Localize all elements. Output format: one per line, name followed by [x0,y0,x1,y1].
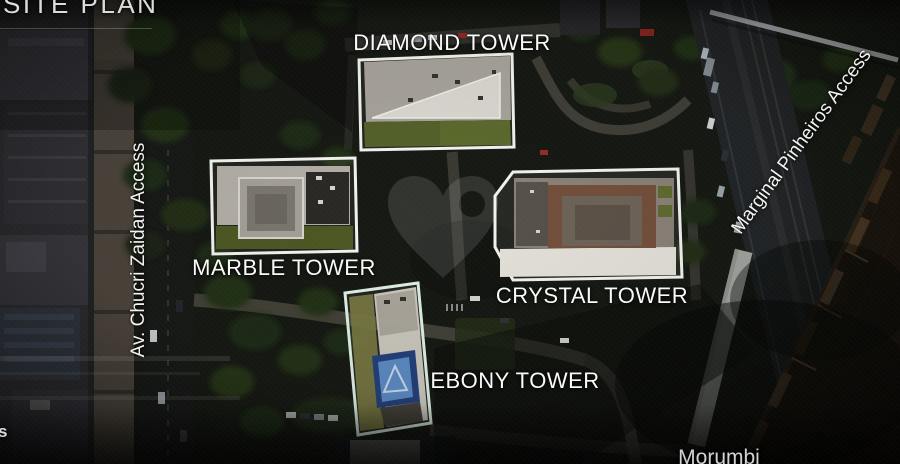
title-underline [0,28,152,29]
site-plan-view: SITE PLAN DIAMOND TOWER MARBLE TOWER CRY… [0,0,900,464]
ebony-tower-label: EBONY TOWER [430,368,599,394]
page-title: SITE PLAN [3,0,158,20]
crystal-tower-label: CRYSTAL TOWER [496,283,688,309]
diamond-tower-label: DIAMOND TOWER [353,30,551,56]
left-edge-label-fragment: s [0,422,7,442]
street-label-chucri-zaidan: Av. Chucri Zaidan Access [128,143,150,358]
marble-tower-label: MARBLE TOWER [192,255,376,281]
street-label-morumbi: Morumbi [678,446,760,464]
